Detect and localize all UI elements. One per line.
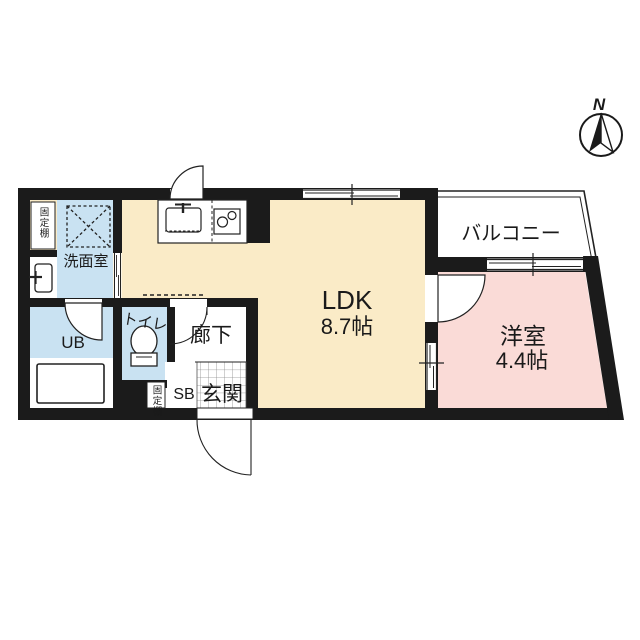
compass-north-label: N [593, 95, 606, 114]
bathtub-icon [37, 364, 104, 403]
wall-toilet-right [167, 307, 175, 362]
wall-corridor-right [246, 298, 258, 408]
shoe-box-label: SB [173, 386, 194, 403]
unit-bath-label: UB [61, 333, 85, 352]
washroom-floor [57, 200, 113, 298]
washroom-sliding-door [114, 253, 122, 298]
wall-shelf-divider [30, 250, 57, 258]
fixed-shelf-top-label: 固定棚 [38, 207, 50, 239]
compass-icon [580, 113, 622, 156]
wall-kitchen-stub [247, 200, 270, 243]
fixed-shelf-entrance-label: 固定棚 [151, 385, 163, 417]
ldk-size-label: 8.7帖 [321, 314, 374, 339]
stove-icon [214, 209, 240, 234]
corridor-label: 廊下 [190, 324, 232, 347]
wall-washroom-right-upper [113, 200, 122, 253]
wall-below-toilet [113, 380, 147, 408]
kitchen-counter [158, 200, 247, 243]
western-room-label: 洋室 [500, 323, 546, 349]
wall-bottom [18, 408, 612, 420]
wall-mid-horizontal [18, 298, 246, 307]
washroom-label: 洗面室 [63, 253, 108, 270]
kitchen-outside-door [170, 166, 203, 199]
ldk-label: LDK [322, 285, 373, 315]
balcony-label: バルコニー [461, 223, 561, 245]
western-room-size-label: 4.4帖 [496, 348, 549, 373]
floor-plan-drawing: N LDK 8.7帖 洋室 4.4帖 バルコニー 廊下 玄関 SB トイレ UB… [0, 0, 640, 640]
entrance-label: 玄関 [201, 383, 243, 406]
floor-plan-canvas: N LDK 8.7帖 洋室 4.4帖 バルコニー 廊下 玄関 SB トイレ UB… [0, 0, 640, 640]
entrance-door [197, 408, 253, 475]
